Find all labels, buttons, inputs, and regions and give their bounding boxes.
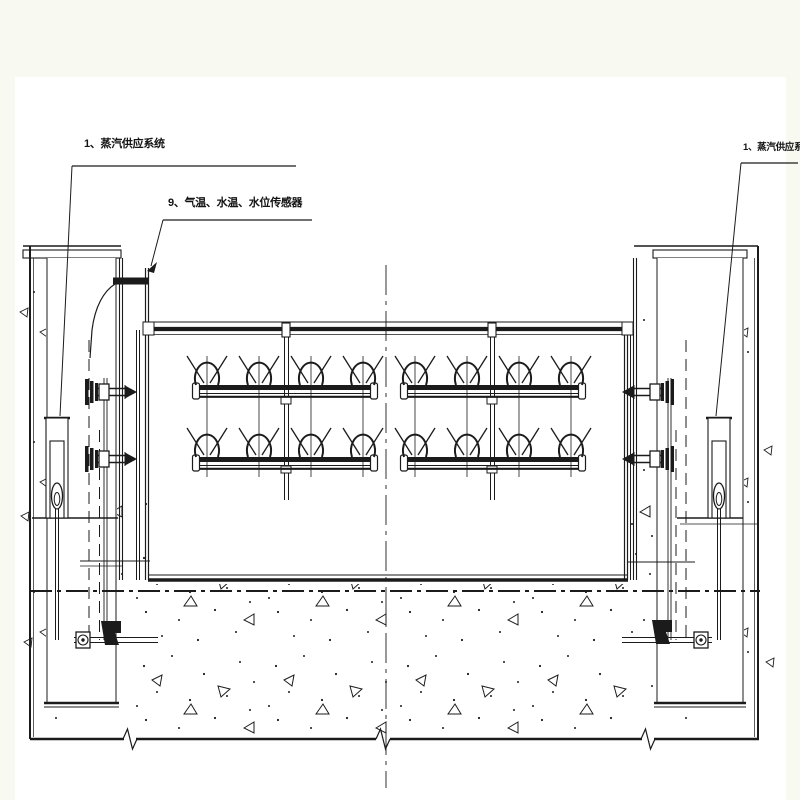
label-sensors: 9、气温、水温、水位传感器 xyxy=(168,194,302,210)
engineering-drawing: 1、蒸汽供应系统 9、气温、水温、水位传感器 1、蒸汽供应系统 xyxy=(0,0,800,800)
drawing-canvas xyxy=(0,0,800,800)
label-steam-system-right: 1、蒸汽供应系统 xyxy=(743,139,800,153)
label-steam-system-left: 1、蒸汽供应系统 xyxy=(84,135,165,151)
